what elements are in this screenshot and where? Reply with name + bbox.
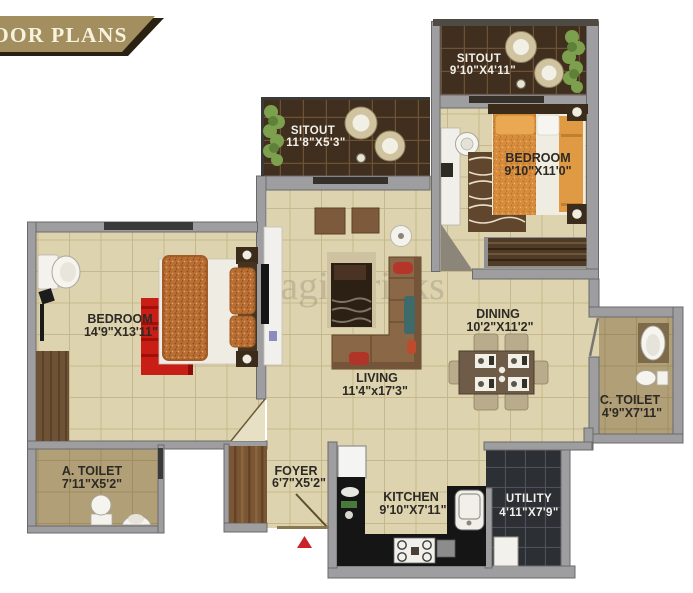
svg-text:KITCHEN: KITCHEN (383, 490, 439, 504)
svg-text:OOR PLANS: OOR PLANS (0, 23, 128, 47)
svg-text:10'2"X11'2": 10'2"X11'2" (466, 320, 533, 334)
svg-text:9'10"X7'11": 9'10"X7'11" (379, 503, 446, 517)
svg-text:UTILITY: UTILITY (506, 493, 552, 505)
svg-text:7'11"X5'2": 7'11"X5'2" (62, 477, 122, 491)
svg-text:SITOUT: SITOUT (457, 53, 501, 65)
svg-text:6'7"X5'2": 6'7"X5'2" (272, 476, 326, 490)
svg-text:14'9"X13'11": 14'9"X13'11" (84, 325, 158, 339)
svg-text:11'8"X5'3": 11'8"X5'3" (286, 137, 345, 149)
svg-text:4'11"X7'9": 4'11"X7'9" (499, 507, 558, 519)
svg-text:BEDROOM: BEDROOM (87, 312, 152, 326)
svg-text:9'10"X11'0": 9'10"X11'0" (504, 164, 571, 178)
svg-text:9'10"X4'11": 9'10"X4'11" (450, 65, 516, 77)
svg-text:DINING: DINING (476, 307, 520, 321)
svg-text:A. TOILET: A. TOILET (62, 464, 123, 478)
svg-text:BEDROOM: BEDROOM (505, 151, 570, 165)
svg-text:SITOUT: SITOUT (291, 125, 335, 137)
svg-text:4'9"X7'11": 4'9"X7'11" (602, 406, 662, 420)
svg-text:C. TOILET: C. TOILET (600, 393, 661, 407)
svg-text:LIVING: LIVING (356, 371, 398, 385)
svg-text:11'4"x17'3": 11'4"x17'3" (342, 384, 408, 398)
